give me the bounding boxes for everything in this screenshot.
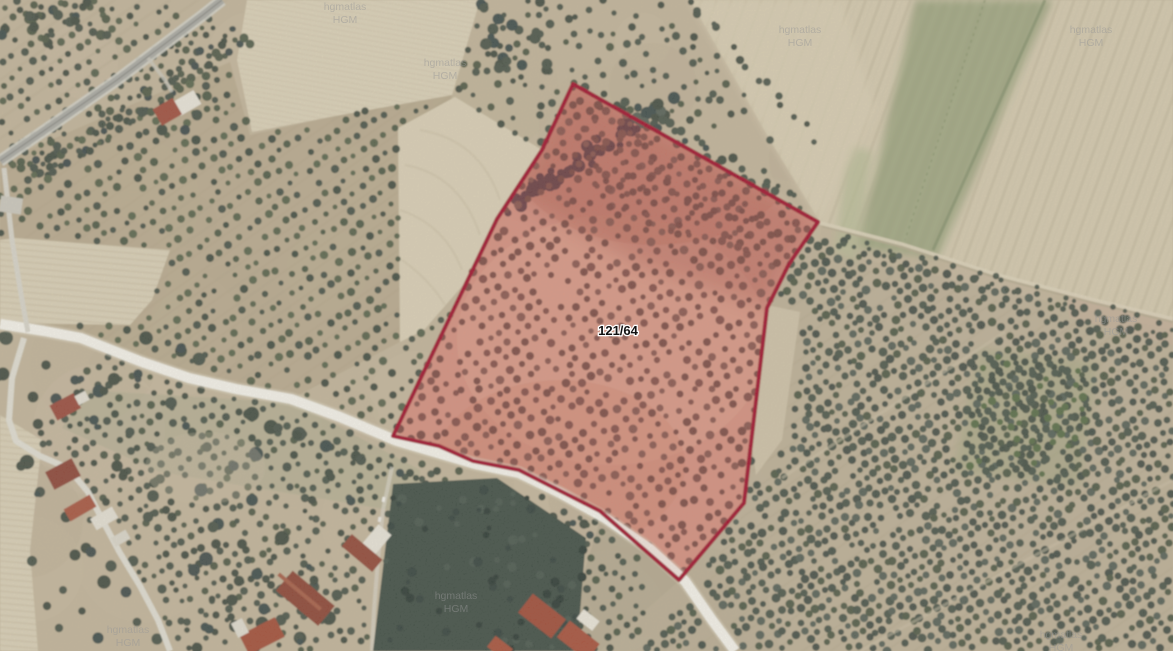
svg-text:HGM: HGM xyxy=(1104,326,1129,338)
svg-text:HGM: HGM xyxy=(333,14,358,26)
svg-text:hgmatlas: hgmatlas xyxy=(435,590,478,602)
svg-text:hgmatlas: hgmatlas xyxy=(107,624,150,636)
svg-text:hgmatlas: hgmatlas xyxy=(324,1,367,13)
svg-text:hgmatlas: hgmatlas xyxy=(779,24,822,36)
svg-text:121/64: 121/64 xyxy=(598,323,639,338)
svg-text:hgmatlas: hgmatlas xyxy=(424,57,467,69)
svg-text:hgmatlas: hgmatlas xyxy=(1095,313,1138,325)
svg-text:hgmatlas: hgmatlas xyxy=(1040,629,1083,641)
svg-text:HGM: HGM xyxy=(433,70,458,82)
svg-text:HGM: HGM xyxy=(1049,642,1074,651)
svg-text:HGM: HGM xyxy=(1079,37,1104,49)
svg-text:hgmatlas: hgmatlas xyxy=(1070,24,1113,36)
svg-text:HGM: HGM xyxy=(788,37,813,49)
svg-text:HGM: HGM xyxy=(116,637,141,649)
svg-text:HGM: HGM xyxy=(444,603,469,615)
